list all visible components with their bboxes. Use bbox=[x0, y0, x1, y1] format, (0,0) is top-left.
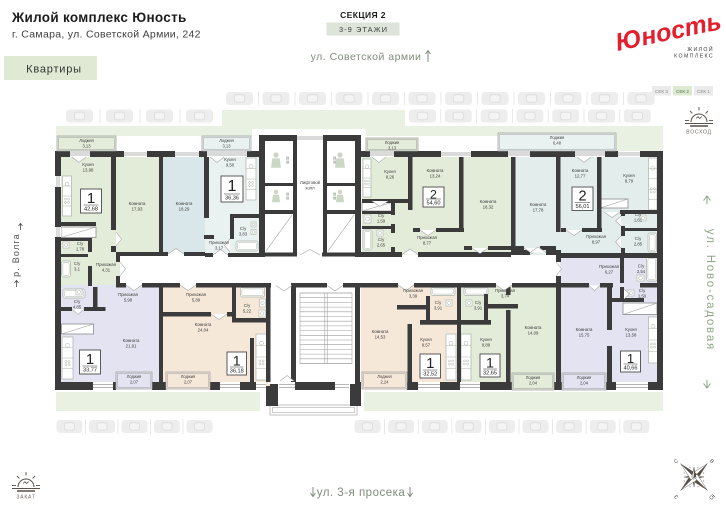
svg-text:холл: холл bbox=[305, 186, 315, 191]
svg-text:54,60: 54,60 bbox=[427, 201, 441, 207]
svg-text:1: 1 bbox=[426, 356, 434, 372]
svg-text:СЕК 3: СЕК 3 bbox=[655, 89, 668, 94]
svg-text:18,29: 18,29 bbox=[179, 207, 190, 212]
svg-text:С/у: С/у bbox=[435, 300, 442, 305]
svg-text:ЗАКАТ: ЗАКАТ bbox=[16, 495, 35, 501]
svg-text:КОМПЛЕКС: КОМПЛЕКС bbox=[674, 54, 714, 60]
svg-text:8,26: 8,26 bbox=[386, 175, 395, 180]
svg-text:ЖИЛОЙ: ЖИЛОЙ bbox=[687, 45, 714, 53]
svg-text:Кухня: Кухня bbox=[82, 162, 94, 167]
svg-text:2,04: 2,04 bbox=[580, 381, 589, 386]
svg-text:56,01: 56,01 bbox=[576, 204, 590, 210]
svg-text:13,98: 13,98 bbox=[83, 168, 94, 173]
svg-text:9,89: 9,89 bbox=[482, 343, 491, 348]
svg-text:Комната: Комната bbox=[176, 201, 193, 206]
svg-text:ул. 3-я просека: ул. 3-я просека bbox=[317, 487, 406, 499]
svg-text:36,18: 36,18 bbox=[230, 369, 244, 375]
svg-text:Прихожая: Прихожая bbox=[118, 292, 139, 297]
svg-text:21,91: 21,91 bbox=[126, 344, 137, 349]
svg-text:С/у: С/у bbox=[74, 261, 81, 266]
svg-text:Лоджия: Лоджия bbox=[385, 140, 400, 145]
svg-text:2,85: 2,85 bbox=[634, 242, 643, 247]
svg-text:Прихожая: Прихожая bbox=[403, 288, 424, 293]
svg-text:Лоджия: Лоджия bbox=[550, 135, 565, 140]
svg-text:3,83: 3,83 bbox=[239, 232, 248, 237]
svg-text:С/у: С/у bbox=[240, 226, 247, 231]
svg-text:18,32: 18,32 bbox=[483, 205, 494, 210]
svg-text:3,17: 3,17 bbox=[215, 246, 224, 251]
svg-text:С/у: С/у bbox=[475, 300, 482, 305]
svg-text:32,52: 32,52 bbox=[423, 372, 437, 378]
svg-text:12,77: 12,77 bbox=[575, 174, 586, 179]
svg-text:Комната: Комната bbox=[530, 202, 547, 207]
svg-text:40,66: 40,66 bbox=[624, 366, 638, 372]
svg-text:Лифтовой: Лифтовой bbox=[300, 180, 321, 185]
svg-text:Лоджия: Лоджия bbox=[577, 375, 592, 380]
svg-text:Комната: Комната bbox=[480, 199, 497, 204]
svg-text:2,07: 2,07 bbox=[130, 380, 139, 385]
svg-text:3,13: 3,13 bbox=[83, 144, 92, 149]
svg-text:2,24: 2,24 bbox=[381, 380, 390, 385]
svg-text:г. Самара, ул. Советской Армии: г. Самара, ул. Советской Армии, 242 bbox=[12, 29, 201, 41]
svg-text:5,89: 5,89 bbox=[192, 298, 201, 303]
svg-text:13,24: 13,24 bbox=[430, 174, 441, 179]
svg-text:С/у: С/у bbox=[635, 212, 642, 217]
svg-text:ВОСХОД: ВОСХОД bbox=[686, 130, 712, 136]
svg-text:Лоджия: Лоджия bbox=[79, 138, 94, 143]
svg-text:15,75: 15,75 bbox=[579, 333, 590, 338]
svg-text:С/у: С/у bbox=[635, 236, 642, 241]
svg-text:2,04: 2,04 bbox=[529, 381, 538, 386]
svg-text:Лоджия: Лоджия bbox=[526, 375, 541, 380]
svg-text:8,79: 8,79 bbox=[625, 179, 634, 184]
svg-text:Кухня: Кухня bbox=[625, 327, 637, 332]
svg-text:Комната: Комната bbox=[427, 168, 444, 173]
svg-text:8,97: 8,97 bbox=[592, 240, 601, 245]
svg-text:3,13: 3,13 bbox=[388, 146, 397, 151]
svg-text:5,22: 5,22 bbox=[243, 309, 252, 314]
svg-text:Прихожая: Прихожая bbox=[209, 240, 230, 245]
svg-text:36,36: 36,36 bbox=[225, 196, 239, 202]
svg-text:9,57: 9,57 bbox=[422, 343, 431, 348]
svg-text:С/у: С/у bbox=[77, 241, 84, 246]
svg-text:4,85: 4,85 bbox=[73, 305, 82, 310]
svg-text:ул. Советской армии: ул. Советской армии bbox=[311, 51, 422, 63]
svg-text:8,77: 8,77 bbox=[423, 241, 432, 246]
svg-text:СЕК 1: СЕК 1 bbox=[697, 89, 710, 94]
svg-text:5,98: 5,98 bbox=[124, 298, 133, 303]
svg-text:1: 1 bbox=[86, 352, 94, 368]
svg-text:Кухня: Кухня bbox=[224, 157, 236, 162]
svg-text:1: 1 bbox=[87, 191, 95, 207]
svg-text:С/у: С/у bbox=[244, 303, 251, 308]
svg-text:р. Волга: р. Волга bbox=[11, 233, 21, 277]
svg-text:3,91: 3,91 bbox=[474, 306, 483, 311]
svg-text:42,68: 42,68 bbox=[84, 207, 98, 213]
svg-text:Прихожая: Прихожая bbox=[96, 262, 117, 267]
svg-text:С/у: С/у bbox=[378, 213, 385, 218]
svg-text:Прихожая: Прихожая bbox=[495, 288, 516, 293]
svg-text:С/у: С/у bbox=[378, 237, 385, 242]
svg-text:33,77: 33,77 bbox=[83, 368, 97, 374]
svg-text:Комната: Комната bbox=[576, 327, 593, 332]
svg-text:13,58: 13,58 bbox=[626, 333, 637, 338]
svg-text:2,07: 2,07 bbox=[184, 380, 193, 385]
svg-text:14,09: 14,09 bbox=[528, 331, 539, 336]
svg-text:6,27: 6,27 bbox=[605, 270, 614, 275]
svg-text:Комната: Комната bbox=[129, 201, 146, 206]
svg-text:Комната: Комната bbox=[195, 322, 212, 327]
svg-text:1: 1 bbox=[228, 177, 237, 195]
svg-text:С/у: С/у bbox=[638, 264, 645, 269]
svg-text:6,48: 6,48 bbox=[553, 141, 562, 146]
svg-text:СЕКЦИЯ 2: СЕКЦИЯ 2 bbox=[340, 10, 386, 20]
svg-text:Лоджия: Лоджия bbox=[219, 138, 234, 143]
svg-text:Кухня: Кухня bbox=[384, 169, 396, 174]
svg-text:Прихожая: Прихожая bbox=[586, 234, 607, 239]
svg-text:С/у: С/у bbox=[74, 299, 81, 304]
svg-text:3,39: 3,39 bbox=[409, 294, 418, 299]
svg-text:Комната: Комната bbox=[572, 168, 589, 173]
svg-text:Лоджия: Лоджия bbox=[181, 374, 196, 379]
svg-text:2,54: 2,54 bbox=[637, 269, 646, 274]
svg-text:Комната: Комната bbox=[123, 338, 140, 343]
svg-text:СЕК 2: СЕК 2 bbox=[676, 89, 689, 94]
svg-text:4,31: 4,31 bbox=[102, 268, 111, 273]
svg-text:3,13: 3,13 bbox=[223, 144, 232, 149]
svg-text:14,53: 14,53 bbox=[375, 335, 386, 340]
svg-text:2: 2 bbox=[430, 188, 437, 202]
svg-text:Жилой комплекс Юность: Жилой комплекс Юность bbox=[11, 10, 187, 25]
svg-text:Комната: Комната bbox=[372, 329, 389, 334]
svg-text:Лоджия: Лоджия bbox=[127, 374, 142, 379]
svg-text:1,50: 1,50 bbox=[638, 294, 647, 299]
svg-text:3,91: 3,91 bbox=[434, 306, 443, 311]
svg-text:Комната: Комната bbox=[525, 325, 542, 330]
svg-text:17,78: 17,78 bbox=[533, 208, 544, 213]
svg-text:3,1: 3,1 bbox=[74, 267, 81, 272]
svg-text:32,65: 32,65 bbox=[483, 371, 497, 377]
svg-text:1,61: 1,61 bbox=[634, 218, 643, 223]
svg-text:1,59: 1,59 bbox=[377, 219, 386, 224]
svg-text:9,50: 9,50 bbox=[226, 163, 235, 168]
svg-text:3,74: 3,74 bbox=[501, 294, 510, 299]
svg-text:Кухня: Кухня bbox=[623, 173, 635, 178]
svg-text:Прихожая: Прихожая bbox=[186, 292, 207, 297]
svg-text:Прихожая: Прихожая bbox=[599, 264, 620, 269]
svg-text:С/у: С/у bbox=[639, 288, 646, 293]
svg-text:Квартиры: Квартиры bbox=[26, 64, 82, 76]
svg-text:Кухня: Кухня bbox=[420, 337, 432, 342]
svg-text:24,04: 24,04 bbox=[198, 328, 209, 333]
svg-text:Кухня: Кухня bbox=[480, 337, 492, 342]
svg-text:3-9 ЭТАЖИ: 3-9 ЭТАЖИ bbox=[339, 25, 388, 34]
svg-text:17,93: 17,93 bbox=[132, 207, 143, 212]
svg-text:2,65: 2,65 bbox=[377, 243, 386, 248]
svg-text:ул. Ново-садовая: ул. Ново-садовая bbox=[704, 229, 716, 351]
svg-text:Лоджия: Лоджия bbox=[377, 374, 392, 379]
svg-text:Прихожая: Прихожая bbox=[417, 235, 438, 240]
svg-text:1,78: 1,78 bbox=[76, 247, 85, 252]
